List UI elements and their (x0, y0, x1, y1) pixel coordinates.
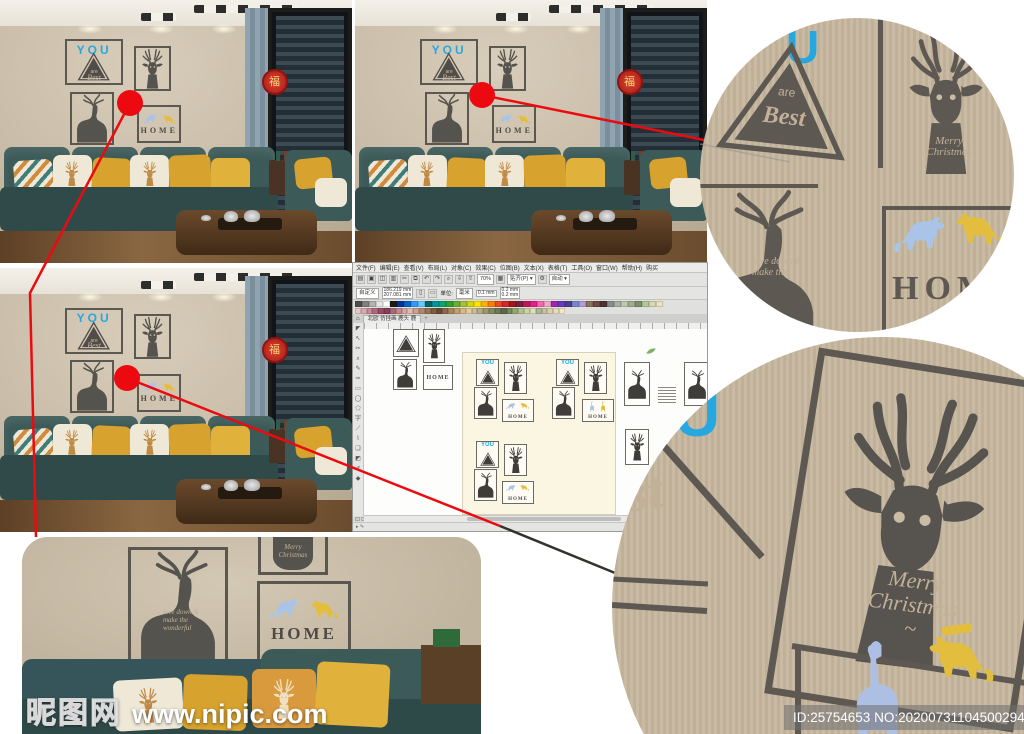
coffee-table (531, 210, 672, 255)
auto-dropdown[interactable]: 自动 ▾ (549, 274, 570, 285)
cup (201, 484, 211, 490)
yellow-horse-art (516, 115, 531, 126)
ceiling-light (141, 281, 176, 289)
fullscreen-preview-button[interactable]: ▦ (496, 275, 505, 284)
copy-button[interactable]: ⧉ (411, 275, 420, 284)
palette-swatch[interactable] (572, 301, 579, 307)
units-label: 单位: (440, 289, 453, 297)
text-tool[interactable]: 字 (354, 415, 362, 423)
units-select[interactable]: 毫米 (456, 288, 473, 299)
palette-swatch[interactable] (397, 301, 404, 307)
palette-swatch[interactable] (614, 301, 621, 307)
export-button[interactable]: ⇧ (466, 275, 475, 284)
canvas-object-homeh[interactable]: HOME (502, 399, 534, 422)
redo-button[interactable]: ↷ (433, 275, 442, 284)
canvas-object-head[interactable] (423, 329, 445, 363)
canvas-object-home[interactable]: HOME (423, 365, 453, 390)
palette-swatch[interactable] (607, 301, 614, 307)
canvas-object-head[interactable] (504, 444, 527, 476)
best-word: Best (71, 341, 116, 350)
deer-head-frame (134, 46, 171, 91)
site-name: 昵图网 (26, 688, 122, 732)
transparency-tool[interactable]: ◩ (354, 455, 362, 463)
room-photo-2: 福 YOU are Best HOME (355, 0, 707, 263)
home-icon[interactable]: ⌂ (356, 316, 360, 322)
best-partial-script: est (612, 461, 666, 527)
crop-tool[interactable]: ✂ (354, 345, 362, 353)
palette-swatch[interactable] (453, 301, 460, 307)
palette-swatch[interactable] (355, 301, 362, 307)
nudge-field[interactable]: 0.1 mm (476, 290, 497, 297)
deer-side-frame: love down &make thewonderful (128, 547, 228, 673)
palette-swatch[interactable] (467, 301, 474, 307)
palette-swatch[interactable] (649, 301, 656, 307)
palette-swatch[interactable] (425, 301, 432, 307)
yellow-horse-art (161, 115, 176, 126)
kettle (224, 211, 238, 222)
palette-swatch[interactable] (383, 301, 390, 307)
menu-item[interactable]: 购买 (646, 263, 658, 272)
document-tab[interactable]: 北欧 仿挂画 鹿头 鹿 (363, 315, 422, 323)
fu-ornament: 福 (262, 337, 288, 363)
document-tab-bar: ⌂ 北欧 仿挂画 鹿头 鹿 + (353, 314, 707, 323)
home-frame: HOME (137, 374, 181, 412)
preview-collage: 福 YOU are Best HOME (0, 0, 1024, 734)
palette-swatch[interactable] (411, 301, 418, 307)
freehand-tool[interactable]: ✎ (354, 365, 362, 373)
best-word: Best (71, 73, 116, 82)
home-word: HOME (260, 624, 348, 644)
search-button[interactable]: ⌕ (444, 275, 453, 284)
page-preset-select[interactable]: 自定义 (356, 288, 379, 299)
room-photo-3: 福 YOU are Best HOME (0, 268, 352, 532)
standard-toolbar: ▤ ▣ ◫ ▥ ✂ ⧉ ↶ ↷ ⌕ ⇩ ⇧ 70% ▦ 贴齐(P) ▾ ⚙ 自动… (353, 272, 707, 287)
cup (556, 215, 566, 221)
save-button[interactable]: ◫ (378, 275, 387, 284)
menu-item[interactable]: 表格(T) (548, 263, 568, 272)
menu-item[interactable]: 帮助(H) (622, 263, 642, 272)
palette-swatch[interactable] (600, 301, 607, 307)
kettle (244, 210, 261, 222)
canvas-object-you[interactable]: YOU (476, 441, 499, 468)
yellow-horse-art (918, 635, 996, 695)
you-best-frame: YOU are Best (65, 308, 123, 354)
menu-item[interactable]: 查看(V) (404, 263, 424, 272)
palette-swatch[interactable] (544, 301, 551, 307)
menu-item[interactable]: 布局(L) (428, 263, 447, 272)
coffee-table (176, 210, 317, 255)
zoom-circle-small: U are Best MerryChristmas love down &mak… (700, 18, 1014, 332)
canvas-object-side[interactable] (474, 387, 497, 419)
home-frame: HOME (137, 105, 181, 143)
spotlight (77, 24, 103, 34)
merry-badge: MerryChristmas (273, 537, 314, 570)
blue-horse-art (143, 382, 159, 394)
image-id-bar: ID:25754653 NO:20200731104500294035 (784, 705, 1024, 730)
kettle (224, 480, 238, 491)
frame-border-segment (882, 206, 1014, 210)
duplicate-distance-fields[interactable]: 0.2 mm 0.2 mm (500, 287, 521, 299)
cut-button[interactable]: ✂ (400, 275, 409, 284)
palette-swatch[interactable] (446, 301, 453, 307)
callout-line-diagonal-dark (500, 526, 620, 575)
kettle (244, 479, 261, 491)
palette-swatch[interactable] (369, 301, 376, 307)
palette-swatch[interactable] (628, 301, 635, 307)
menu-item[interactable]: 对象(C) (451, 263, 471, 272)
spotlight (211, 292, 237, 302)
spotlight (148, 292, 174, 302)
import-button[interactable]: ⇩ (455, 275, 464, 284)
palette-swatch[interactable] (404, 301, 411, 307)
palette-swatch[interactable] (586, 301, 593, 307)
artistic-media-tool[interactable]: ✑ (354, 375, 362, 383)
green-box (433, 629, 460, 647)
menu-item[interactable]: 文本(X) (524, 263, 544, 272)
side-shelf (421, 645, 481, 704)
menu-item[interactable]: 位图(B) (500, 263, 520, 272)
kettle (579, 211, 593, 222)
zoom-circle-large: U est MerryChristmas~ (612, 337, 1024, 734)
fu-ornament: 福 (262, 69, 288, 95)
coffee-table (176, 479, 317, 524)
menu-item[interactable]: 工具(O) (571, 263, 592, 272)
interactive-fill-tool[interactable]: ◆ (354, 475, 362, 483)
spotlight (503, 24, 529, 34)
room-photo-1: 福 YOU are Best HOME (0, 0, 352, 263)
cup (201, 215, 211, 221)
drop-shadow-tool[interactable]: ❏ (354, 445, 362, 453)
yellow-horse-art (307, 600, 339, 624)
palette-swatch[interactable] (509, 301, 516, 307)
deer-head-art (136, 48, 169, 89)
deer-head-frame (134, 314, 171, 359)
palette-swatch[interactable] (481, 301, 488, 307)
palette-swatch[interactable] (593, 301, 600, 307)
palette-swatch[interactable] (460, 301, 467, 307)
palette-swatch[interactable] (488, 301, 495, 307)
deer-head-art (491, 48, 524, 89)
merry-christmas-script: MerryChristmas (904, 136, 994, 158)
blue-horse-art (892, 216, 954, 262)
deer-head-art (136, 316, 169, 357)
white-pillow (670, 178, 702, 206)
you-best-frame: YOU are Best (65, 39, 123, 85)
portrait-button[interactable]: ▯ (416, 289, 425, 298)
property-bar: 自定义 186.219 mm 207.081 mm ▯ ▭ 单位: 毫米 0.1… (353, 287, 707, 300)
site-watermark: 昵图网 www.nipic.com (26, 688, 328, 732)
blue-horse-art (498, 114, 514, 126)
spotlight (211, 24, 237, 34)
zoom-tool[interactable]: ⌕ (354, 355, 362, 363)
print-button[interactable]: ▥ (389, 275, 398, 284)
palette-swatch[interactable] (642, 301, 649, 307)
deer-side-art (72, 94, 112, 143)
menu-item[interactable]: 窗口(W) (596, 263, 618, 272)
deer-side-frame (425, 92, 469, 145)
palette-swatch[interactable] (551, 301, 558, 307)
menu-bar: 文件(F)编辑(E)查看(V)布局(L)对象(C)效果(C)位图(B)文本(X)… (353, 263, 707, 272)
undo-button[interactable]: ↶ (422, 275, 431, 284)
toolbox: ◤ ↖ ✂ ⌕ ✎ ✑ ▭ ◯ ⬠ 字 ⟋ ⌇ ❏ ◩ ✐ ◆ (353, 323, 364, 516)
fu-ornament: 福 (617, 69, 643, 95)
page-size-fields[interactable]: 186.219 mm 207.081 mm (382, 287, 414, 299)
rectangle-tool[interactable]: ▭ (354, 385, 362, 393)
palette-swatch[interactable] (656, 301, 663, 307)
spotlight (432, 24, 458, 34)
new-tab-plus-icon[interactable]: + (424, 316, 428, 322)
canvas-object-head[interactable] (504, 362, 527, 394)
parallel-dimension-tool[interactable]: ⟋ (354, 425, 362, 433)
new-document-button[interactable]: ▤ (356, 275, 365, 284)
blue-horse-art (143, 114, 159, 126)
canvas-object-side[interactable] (393, 359, 417, 390)
deer-script: love down &make thewonderful (163, 608, 199, 632)
palette-swatch[interactable] (579, 301, 586, 307)
deer-side-frame (70, 360, 114, 413)
yellow-horse-art (161, 383, 176, 394)
frame-border-segment (878, 18, 883, 168)
canvas-object-you[interactable]: YOU (556, 359, 579, 386)
canvas-object-homeh[interactable]: HOME (502, 481, 534, 504)
palette-swatch[interactable] (516, 301, 523, 307)
leaf-decoration (645, 347, 657, 355)
you-best-frame: YOU are Best (420, 39, 478, 85)
ceiling-light (141, 13, 176, 21)
white-pillow (315, 447, 347, 476)
kettle (599, 210, 616, 222)
merry-badge-frame: MerryChristmas (258, 537, 328, 575)
menu-item[interactable]: 效果(C) (475, 263, 495, 272)
palette-swatch[interactable] (635, 301, 642, 307)
palette-swatch[interactable] (418, 301, 425, 307)
blue-horse-art (269, 598, 303, 624)
spotlight (148, 24, 174, 34)
canvas-object-you[interactable]: YOU (476, 359, 499, 386)
palette-swatch[interactable] (565, 301, 572, 307)
palette-swatch[interactable] (537, 301, 544, 307)
frame-border-segment (882, 206, 886, 332)
home-word: HOME (494, 126, 534, 135)
snap-to-dropdown[interactable]: 贴齐(P) ▾ (507, 274, 536, 285)
deer-head-frame (489, 46, 526, 91)
spotlight (566, 24, 592, 34)
zoom-level-select[interactable]: 70% (477, 274, 494, 285)
white-pillow (315, 178, 347, 206)
canvas-object-head[interactable] (584, 362, 607, 394)
ceiling-light (496, 13, 531, 21)
palette-swatch[interactable] (439, 301, 446, 307)
home-partial-word: HOM (892, 270, 995, 308)
canvas-object-tri[interactable] (393, 329, 419, 357)
options-gear-button[interactable]: ⚙ (538, 275, 547, 284)
polygon-tool[interactable]: ⬠ (354, 405, 362, 413)
deer-script: love down &make the (752, 256, 803, 278)
spotlight (77, 292, 103, 302)
pick-tool[interactable]: ◤ (354, 325, 362, 333)
menu-item[interactable]: 文件(F) (356, 263, 376, 272)
shape-tool[interactable]: ↖ (354, 335, 362, 343)
palette-swatch[interactable] (502, 301, 509, 307)
palette-swatch[interactable] (432, 301, 439, 307)
palette-swatch[interactable] (621, 301, 628, 307)
palette-swatch[interactable] (495, 301, 502, 307)
home-frame: HOME (492, 105, 536, 143)
palette-swatch[interactable] (530, 301, 537, 307)
palette-swatch[interactable] (558, 301, 565, 307)
yellow-horse-art (948, 212, 1006, 256)
ellipse-tool[interactable]: ◯ (354, 395, 362, 403)
canvas-object-side[interactable] (474, 469, 497, 501)
deer-side-frame (70, 92, 114, 145)
palette-swatch[interactable] (390, 301, 397, 307)
site-url: www.nipic.com (132, 699, 328, 730)
palette-swatch[interactable] (474, 301, 481, 307)
open-button[interactable]: ▣ (367, 275, 376, 284)
deer-side-art (427, 94, 467, 143)
color-eyedropper-tool[interactable]: ✐ (354, 465, 362, 473)
canvas-object-homel[interactable]: HOME (582, 399, 614, 422)
connector-tool[interactable]: ⌇ (354, 435, 362, 443)
are-best-triangle-art: are Best (710, 33, 862, 165)
palette-swatch[interactable] (523, 301, 530, 307)
home-word: HOME (139, 126, 179, 135)
deer-side-art (72, 362, 112, 411)
frame-border-segment (700, 184, 818, 188)
menu-item[interactable]: 编辑(E) (380, 263, 400, 272)
palette-swatch[interactable] (376, 301, 383, 307)
canvas-object-side[interactable] (552, 387, 575, 419)
color-palette (353, 300, 707, 314)
landscape-button[interactable]: ▭ (428, 289, 437, 298)
palette-swatch[interactable] (362, 301, 369, 307)
best-word: Best (426, 73, 471, 82)
home-word: HOME (139, 394, 179, 403)
